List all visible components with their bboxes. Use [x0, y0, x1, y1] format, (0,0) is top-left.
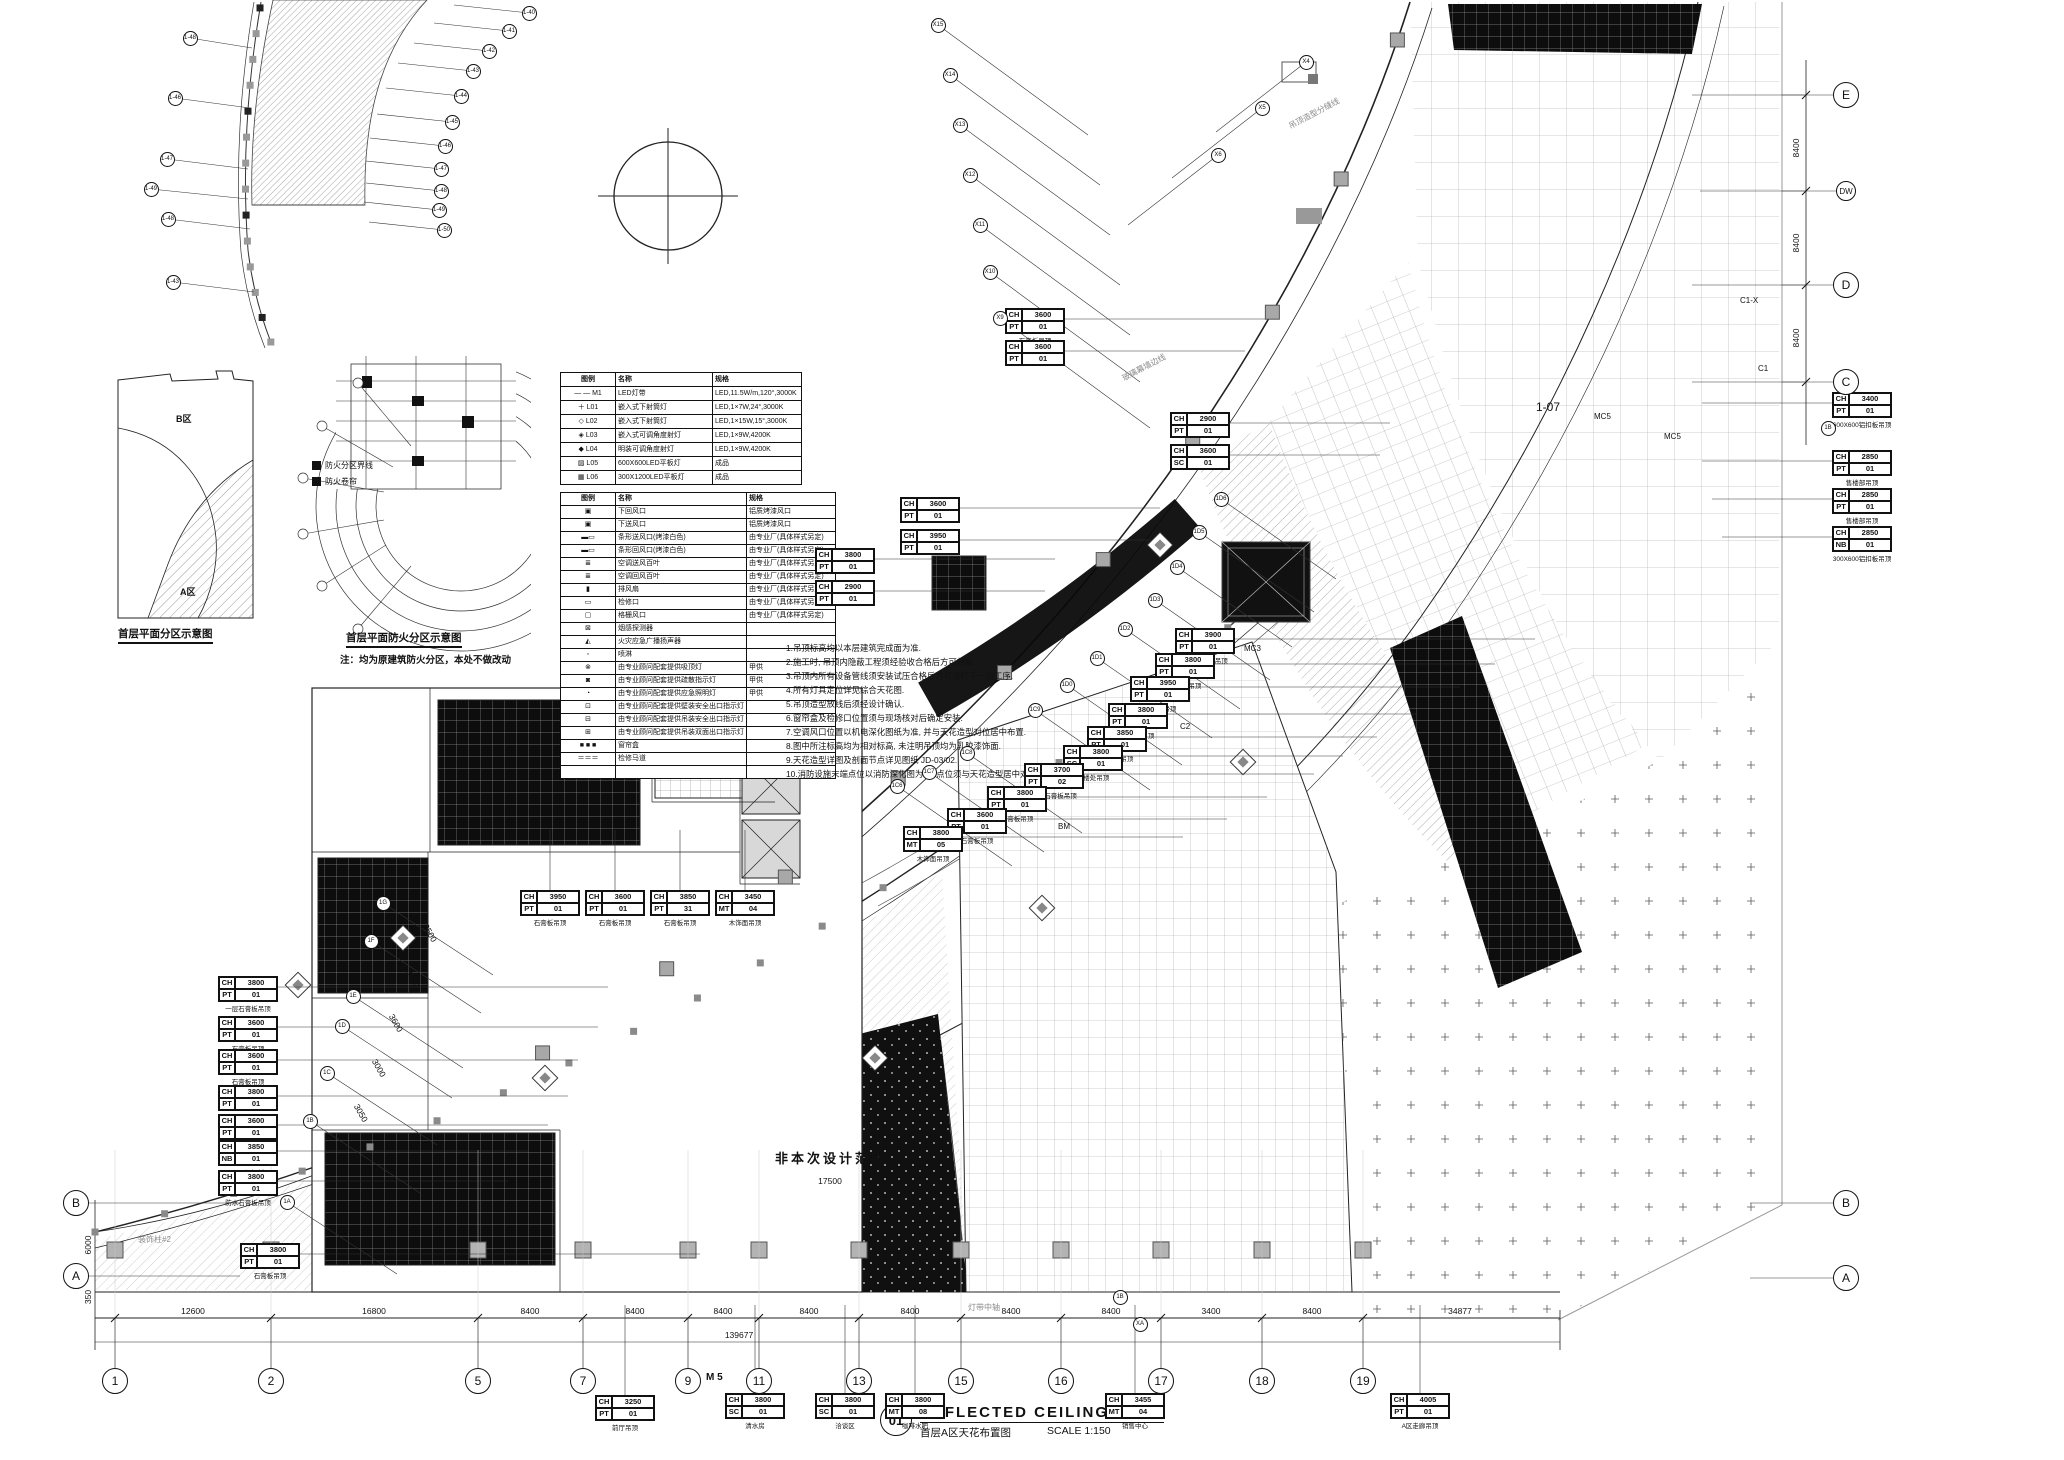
grid-bubble-label: 1D6 [1215, 496, 1226, 502]
ceiling-tag-cell: PT [219, 1062, 235, 1074]
legend-cell: 由专业厂(具体样式另定) [747, 532, 836, 545]
plan-text: M 5 [706, 1372, 723, 1383]
ceiling-tag-cell: MT [904, 839, 920, 851]
ceiling-tag-cell: MT [716, 903, 732, 915]
ceiling-tag-cell: CH [1106, 1394, 1122, 1406]
ceiling-tag-box: CH3600PT01 [585, 890, 645, 916]
grid-bubble-label: 1-48 [184, 35, 196, 41]
grid-bubble-label: 1-48 [162, 216, 174, 222]
dimension-label: 8400 [1303, 1306, 1322, 1316]
grid-bubble-label: 1C [323, 1070, 331, 1076]
ceiling-tag-box: CH3600PT01 [218, 1016, 278, 1042]
grid-bubble: 1 [102, 1368, 128, 1394]
ceiling-tag-cell: 02 [1041, 776, 1083, 788]
legend-cell: LED,11.5W/m,120°,3000K [713, 387, 802, 401]
grid-bubble: 1D2 [1118, 622, 1133, 637]
grid-bubble-label: 1C7 [923, 769, 934, 775]
ceiling-tag-cell: CH [1171, 445, 1187, 457]
ceiling-tag-cell: 3600 [1187, 445, 1229, 457]
dimension-label: 8400 [901, 1306, 920, 1316]
ceiling-tag-caption: 300X600铝扣板吊顶 [1802, 553, 1922, 563]
ceiling-tag-cell: 01 [612, 1408, 654, 1420]
ceiling-tag: CH3600PT01石膏板吊顶 [218, 1049, 278, 1086]
ceiling-tag-cell: 3800 [1004, 787, 1046, 799]
grid-bubble-label: 1-46 [439, 143, 451, 149]
ceiling-tag: CH3600SC01 [1170, 444, 1230, 471]
plan-text: 非本次设计范围 [775, 1148, 887, 1167]
grid-bubble: 1D5 [1192, 525, 1207, 540]
plan-text: MC5 [1594, 412, 1611, 421]
ceiling-tag-box: CH3800PT01 [218, 1170, 278, 1196]
legend-cell: 由专业顾问配套提供壁装安全出口指示灯 [616, 701, 747, 714]
legend-cell: 检修口 [616, 597, 747, 610]
ceiling-tag: CH3600PT01石膏板吊顶 [218, 1016, 278, 1053]
grid-bubble-label: 1D3 [1149, 597, 1160, 603]
ceiling-tag-box: CH3600PT01 [1005, 340, 1065, 366]
grid-bubble: 1-46 [168, 91, 183, 106]
ceiling-tag-cell: 01 [235, 1098, 277, 1110]
ceiling-tag-cell: CH [886, 1394, 902, 1406]
legend-cell: ◦ [561, 649, 616, 662]
legend-row: ⊠烟感探测器 [561, 623, 836, 636]
ceiling-tag-cell: CH [1006, 341, 1022, 353]
legend-cell: 铝质烤漆风口 [747, 506, 836, 519]
grid-bubble: A [1833, 1265, 1859, 1291]
plan-text: C1-X [1740, 296, 1758, 305]
grid-bubble-label: 7 [580, 1374, 587, 1388]
ceiling-tag-box: CH3455MT04 [1105, 1393, 1165, 1419]
ceiling-tag: CH2900PT01 [815, 580, 875, 607]
plan-text: BM [1058, 822, 1070, 831]
legend-cell: ◭ [561, 636, 616, 649]
legend-cell: 明装可调角度射灯 [616, 443, 713, 457]
legend-cell: 火灾应急广播扬声器 [616, 636, 747, 649]
grid-bubble: 1G [376, 896, 391, 911]
ceiling-tag-cell: CH [219, 1017, 235, 1029]
legend-cell: 条形送风口(烤漆白色) [616, 532, 747, 545]
ceiling-tag: CH3800MT05木饰面吊顶 [903, 826, 963, 863]
ceiling-tag-box: CH3450MT04 [715, 890, 775, 916]
legend-cell: ▦ L06 [561, 471, 616, 485]
ceiling-tag-cell: 3900 [1192, 629, 1234, 641]
ceiling-tag-cell: PT [521, 903, 537, 915]
ceiling-tag-cell: 3455 [1122, 1394, 1164, 1406]
ceiling-tag: CH2900PT01 [1170, 412, 1230, 439]
fire-legend-swatch [312, 461, 321, 470]
grid-bubble: 11 [746, 1368, 772, 1394]
legend-cell: LED,1×9W,4200K [713, 429, 802, 443]
legend-row: ◆ L04明装可调角度射灯LED,1×9W,4200K [561, 443, 802, 457]
plan-text: MC3 [1244, 644, 1261, 653]
dimension-label: 8400 [1102, 1306, 1121, 1316]
ceiling-tag-cell: 01 [1022, 353, 1064, 365]
legend-cell: ◇ L02 [561, 415, 616, 429]
ceiling-tag-cell: 3450 [732, 891, 774, 903]
legend-cell: 检修马道 [616, 753, 747, 766]
legend-cell: ▣ [561, 519, 616, 532]
ceiling-tag-cell: PT [241, 1256, 257, 1268]
ceiling-tag-box: CH3400PT01 [1832, 392, 1892, 418]
ceiling-tag-box: CH4005PT01 [1390, 1393, 1450, 1419]
grid-bubble-label: C [1842, 375, 1851, 389]
ceiling-tag-cell: 2850 [1849, 451, 1891, 463]
note-line: 10.消防设施末端点位以消防深化图为准, 点位须与天花造型居中对齐布置. [786, 767, 1056, 781]
grid-bubble: 1D4 [1170, 560, 1185, 575]
plan-text: 1-07 [1536, 400, 1560, 414]
ceiling-tag-box: CH3250PT01 [595, 1395, 655, 1421]
ceiling-tag-cell: PT [219, 1127, 235, 1139]
ceiling-tag-cell: CH [219, 1141, 235, 1153]
legend-row: — — M1LED灯带LED,11.5W/m,120°,3000K [561, 387, 802, 401]
ceiling-tag-cell: 01 [1407, 1406, 1449, 1418]
ceiling-tag-box: CH3800PT01 [218, 1085, 278, 1111]
ceiling-tag: CH3450MT04木饰面吊顶 [715, 890, 775, 927]
legend-cell: ＋ L01 [561, 401, 616, 415]
ceiling-tag-cell: CH [241, 1244, 257, 1256]
grid-bubble: 1F [364, 934, 379, 949]
ceiling-tag-cell: 3600 [235, 1017, 277, 1029]
grid-bubble-label: 1-40 [523, 10, 535, 16]
ceiling-tag-cell: CH [1064, 746, 1080, 758]
ceiling-tag-cell: CH [1088, 727, 1104, 739]
ceiling-tag: CH3800PT01防水石膏板吊顶 [218, 1170, 278, 1207]
ceiling-tag-cell: 05 [920, 839, 962, 851]
grid-bubble-label: 1D4 [1171, 564, 1182, 570]
grid-bubble: 19 [1350, 1368, 1376, 1394]
grid-bubble: 1-46 [438, 139, 453, 154]
ceiling-tag-box: CH3950PT01 [520, 890, 580, 916]
ceiling-tag-cell: 01 [1080, 758, 1122, 770]
grid-bubble: 1-43 [166, 275, 181, 290]
grid-bubble-label: 1A [283, 1199, 290, 1205]
ceiling-tag-cell: 01 [1004, 799, 1046, 811]
legend-cell: 由专业顾问配套提供吸顶灯 [616, 662, 747, 675]
grid-bubble-label: X10 [985, 269, 996, 275]
grid-bubble: A [63, 1263, 89, 1289]
dimension-label: 139677 [725, 1330, 753, 1340]
ceiling-tag-cell: 3950 [917, 530, 959, 542]
ceiling-tag-cell: 01 [1187, 425, 1229, 437]
note-line: 6.窗帘盒及检修口位置须与现场核对后确定安装. [786, 711, 1056, 725]
ceiling-tag-cell: 01 [742, 1406, 784, 1418]
legend-cell: ⊗ [561, 662, 616, 675]
note-line: 1.吊顶标高均以本层建筑完成面为准. [786, 641, 1056, 655]
grid-bubble-label: X6 [1214, 152, 1221, 158]
ceiling-tag-cell: 3850 [667, 891, 709, 903]
ceiling-tag-cell: 01 [832, 1406, 874, 1418]
grid-bubble: 1D0 [1060, 678, 1075, 693]
legend-cell: ■ ■ ■ [561, 740, 616, 753]
ceiling-tag-cell: CH [219, 1115, 235, 1127]
grid-bubble-label: X5 [1258, 105, 1265, 111]
grid-bubble: 16 [1048, 1368, 1074, 1394]
grid-bubble-label: 1-48 [435, 188, 447, 194]
grid-bubble: 1-48 [183, 31, 198, 46]
grid-bubble-label: A [1842, 1271, 1850, 1285]
grid-bubble-label: 1G [379, 900, 387, 906]
grid-bubble: 1-49 [144, 182, 159, 197]
ceiling-tag-cell: PT [596, 1408, 612, 1420]
dimension-label: 8400 [714, 1306, 733, 1316]
grid-bubble-label: X14 [945, 72, 956, 78]
ceiling-tag-box: CH3950PT01 [900, 529, 960, 555]
grid-bubble-label: X12 [965, 172, 976, 178]
ceiling-tag-cell: 3800 [235, 1171, 277, 1183]
legend-cell: ▮ [561, 584, 616, 597]
grid-bubble: 1C8 [960, 746, 975, 761]
ceiling-tag-cell: CH [1833, 527, 1849, 539]
plan-text: 装饰柱#2 [138, 1234, 171, 1245]
ceiling-tag-cell: PT [1391, 1406, 1407, 1418]
grid-bubble-label: X9 [996, 315, 1003, 321]
grid-bubble-label: 1D5 [1193, 529, 1204, 535]
grid-bubble: 1C9 [1028, 703, 1043, 718]
grid-bubble-label: 1B [306, 1118, 313, 1124]
dimension-label: 8400 [521, 1306, 540, 1316]
legend-row: ▢格栅风口由专业厂(具体样式另定) [561, 610, 836, 623]
legend-cell: ≣ [561, 558, 616, 571]
ceiling-tag-cell: 3800 [832, 549, 874, 561]
grid-bubble-label: 1-43 [167, 279, 179, 285]
grid-bubble: 1-49 [432, 203, 447, 218]
grid-bubble-label: 1-44 [455, 93, 467, 99]
legend-row: ▦ L06300X1200LED平板灯成品 [561, 471, 802, 485]
ceiling-tag-cell: 01 [257, 1256, 299, 1268]
grid-bubble: X14 [943, 68, 958, 83]
ceiling-tag-cell: PT [1131, 689, 1147, 701]
grid-bubble: 1C [320, 1066, 335, 1081]
ceiling-tag-cell: 01 [832, 561, 874, 573]
ceiling-tag-cell: 3600 [235, 1050, 277, 1062]
grid-bubble-label: 11 [753, 1374, 765, 1388]
grid-bubble-label: 1C6 [891, 783, 902, 789]
ceiling-tag-cell: PT [219, 1098, 235, 1110]
dimension-label: 8400 [800, 1306, 819, 1316]
ceiling-tag-cell: CH [1109, 704, 1125, 716]
grid-bubble-label: 19 [1356, 1374, 1369, 1388]
dimension-label: 17500 [818, 1176, 842, 1186]
grid-bubble-label: 1E [349, 993, 356, 999]
note-line: 7.空调风口位置以机电深化图纸为准, 并与天花造型对位居中布置. [786, 725, 1056, 739]
grid-bubble: X12 [963, 168, 978, 183]
ceiling-tag-box: CH2850PT01 [1832, 450, 1892, 476]
legend-cell [747, 623, 836, 636]
legend-row: ◇ L02嵌入式下射筒灯LED,1×15W,15°,3000K [561, 415, 802, 429]
legend-cell: 下回风口 [616, 506, 747, 519]
ceiling-tag-caption: 售楼部吊顶 [1802, 477, 1922, 487]
dimension-label: 8400 [1791, 139, 1801, 158]
grid-bubble-label: 15 [954, 1374, 967, 1388]
zone-b-label: B区 [176, 412, 192, 425]
legend-cell: ◆ L04 [561, 443, 616, 457]
legend-row: ▮排风扇由专业厂(具体样式另定) [561, 584, 836, 597]
ceiling-tag-cell: 3800 [1172, 654, 1214, 666]
ceiling-tag-cell: 04 [1122, 1406, 1164, 1418]
misc-boxes [1282, 62, 1322, 224]
ceiling-tag-cell: PT [1833, 501, 1849, 513]
legend-cell: ▣ [561, 506, 616, 519]
keyplan-fire-caption: 首层平面防火分区示意图 [346, 630, 462, 648]
ceiling-tag-cell: CH [1833, 489, 1849, 501]
ceiling-tag-box: CH3850PT31 [650, 890, 710, 916]
ceiling-tag-cell: CH [596, 1396, 612, 1408]
ceiling-tag: CH3800MT08咖啡水吧 [885, 1393, 945, 1430]
lighting-legend-table: 图例名称规格— — M1LED灯带LED,11.5W/m,120°,3000K＋… [560, 372, 802, 485]
ceiling-tag-cell: 01 [1187, 457, 1229, 469]
grid-bubble-label: 1-49 [145, 186, 157, 192]
grid-bubble: X13 [953, 118, 968, 133]
ceiling-tag-cell: PT [816, 593, 832, 605]
grid-bubble: 1-43 [466, 64, 481, 79]
note-line: 5.吊顶造型放线后须经设计确认. [786, 697, 1056, 711]
grid-bubble-label: 1D [338, 1023, 346, 1029]
legend-cell: ▢ [561, 610, 616, 623]
legend-cell: LED灯带 [616, 387, 713, 401]
ceiling-tag-cell: NB [219, 1153, 235, 1165]
ceiling-tag-cell: 3700 [1041, 764, 1083, 776]
legend-cell: 窗帘盒 [616, 740, 747, 753]
ceiling-tag-cell: MT [886, 1406, 902, 1418]
ceiling-tag-cell: CH [219, 1086, 235, 1098]
legend-cell: 嵌入式可调角度射灯 [616, 429, 713, 443]
legend-cell: 烟感探测器 [616, 623, 747, 636]
ceiling-tag-box: CH3850NB01 [218, 1140, 278, 1166]
ceiling-tag-cell: PT [586, 903, 602, 915]
ceiling-tag-cell: CH [586, 891, 602, 903]
ceiling-tag-caption: 销售中心 [1075, 1420, 1195, 1430]
grid-bubble: 1B [303, 1114, 318, 1129]
ceiling-tag-caption: A区走廊吊顶 [1360, 1420, 1480, 1430]
ceiling-tag-cell: SC [816, 1406, 832, 1418]
legend-row: ▣下送风口铝质烤漆风口 [561, 519, 836, 532]
legend-header: 名称 [616, 493, 747, 506]
ceiling-tag-cell: 01 [1849, 463, 1891, 475]
ceiling-tag-cell: CH [816, 1394, 832, 1406]
note-line: 4.所有灯具定位详见综合天花图. [786, 683, 1056, 697]
ceiling-tag-cell: PT [1833, 405, 1849, 417]
legend-cell: ◙ [561, 675, 616, 688]
grid-bubble-label: 5 [475, 1374, 482, 1388]
grid-bubble: X6 [1211, 148, 1226, 163]
grid-bubble: 1C7 [922, 765, 937, 780]
ceiling-tag-cell: 3800 [1080, 746, 1122, 758]
legend-row: ▬▭条形回风口(烤漆白色)由专业厂(具体样式另定) [561, 545, 836, 558]
ceiling-tag-box: CH3800PT01 [815, 548, 875, 574]
ceiling-tag-cell: 01 [602, 903, 644, 915]
grid-bubble-label: 1C8 [961, 750, 972, 756]
legend-cell: 空调送风百叶 [616, 558, 747, 571]
legend-cell: 排风扇 [616, 584, 747, 597]
ceiling-tag-cell: 01 [1192, 641, 1234, 653]
ceiling-tag-cell: 3800 [832, 1394, 874, 1406]
ceiling-tag-cell: SC [1171, 457, 1187, 469]
ceiling-tag-cell: 3800 [235, 1086, 277, 1098]
ceiling-tag-cell: 01 [1022, 321, 1064, 333]
grid-bubble: 1-45 [445, 115, 460, 130]
ceiling-tag-box: CH3900PT01 [1175, 628, 1235, 654]
ceiling-tag-cell: PT [1833, 463, 1849, 475]
grid-bubble: 5 [465, 1368, 491, 1394]
note-line: 2.施工时, 吊顶内隐蔽工程须经验收合格后方可封板. [786, 655, 1056, 669]
legend-cell: 嵌入式下射筒灯 [616, 401, 713, 415]
grid-bubble: 1B [1113, 1290, 1128, 1305]
ceiling-tag: CH3800PT01一层石膏板吊顶 [218, 976, 278, 1013]
ceiling-tag-cell: 01 [917, 510, 959, 522]
grid-bubble-label: E [1842, 88, 1850, 102]
legend-cell: ⊞ [561, 727, 616, 740]
grid-bubble-label: 1B [1116, 1294, 1123, 1300]
legend-cell: ⊡ [561, 701, 616, 714]
ceiling-tag: CH3600PT01 [900, 497, 960, 524]
ceiling-tag-box: CH2850PT01 [1832, 488, 1892, 514]
keyplan-zoning [118, 371, 253, 618]
ceiling-tag-cell: CH [219, 977, 235, 989]
grid-bubble: 7 [570, 1368, 596, 1394]
legend-cell: 由专业厂(具体样式另定) [747, 610, 836, 623]
setout-diamond-marker [285, 972, 310, 997]
ceiling-tag-cell: PT [651, 903, 667, 915]
ceiling-tag-cell: 3600 [1022, 341, 1064, 353]
ceiling-tag-cell: 2850 [1849, 527, 1891, 539]
grid-bubble-label: 18 [1255, 1374, 1268, 1388]
grid-bubble-label: 1F [367, 938, 374, 944]
keyplan-zoning-caption: 首层平面分区示意图 [118, 626, 213, 644]
ceiling-tag-cell: PT [219, 1029, 235, 1041]
grid-bubble-label: A [72, 1269, 80, 1283]
ceiling-tag-cell: CH [1006, 309, 1022, 321]
note-line: 9.天花造型详图及剖面节点详见图纸 JD-03/02. [786, 753, 1056, 767]
legend-cell: 600X600LED平板灯 [616, 457, 713, 471]
grid-bubble: 1D3 [1148, 593, 1163, 608]
grid-bubble-label: DW [1839, 187, 1852, 196]
ceiling-tag-cell: 01 [235, 1062, 277, 1074]
ceiling-tag-box: CH2900PT01 [1170, 412, 1230, 438]
grid-bubble: 1-41 [502, 24, 517, 39]
grid-bubble: X9 [993, 311, 1008, 326]
legend-header: 规格 [713, 373, 802, 387]
ceiling-tag-cell: 01 [1849, 501, 1891, 513]
legend-cell: ⊠ [561, 623, 616, 636]
ceiling-tag: CH3800PT01石膏板吊顶 [240, 1243, 300, 1280]
curved-detail [239, 0, 427, 348]
grid-bubble-label: 1D0 [1061, 682, 1072, 688]
ceiling-tag-cell: PT [1006, 321, 1022, 333]
dimension-label: 8400 [1002, 1306, 1021, 1316]
legend-cell: ▨ L05 [561, 457, 616, 471]
ceiling-tag-cell: CH [1176, 629, 1192, 641]
ceiling-tag-cell: PT [901, 510, 917, 522]
note-line: 3.吊顶内所有设备管线须安装试压合格后方可进行下一道工序. [786, 669, 1056, 683]
legend-cell: ◈ L03 [561, 429, 616, 443]
dimension-label: 34877 [1448, 1306, 1472, 1316]
grid-bubble: 9 [675, 1368, 701, 1394]
grid-bubble-label: B [1842, 1196, 1850, 1210]
grid-bubble: 1-44 [454, 89, 469, 104]
grid-bubble-label: 9 [685, 1374, 692, 1388]
dimension-label: 6000 [83, 1236, 93, 1255]
grid-bubble-label: 1-45 [446, 119, 458, 125]
legend-row: ▣下回风口铝质烤漆风口 [561, 506, 836, 519]
legend-cell: ◔ [561, 688, 616, 701]
grid-bubble: 1C6 [890, 779, 905, 794]
legend-cell: 成品 [713, 471, 802, 485]
legend-cell: 喷淋 [616, 649, 747, 662]
ceiling-tag-box: CH3600SC01 [1170, 444, 1230, 470]
grid-bubble: X4 [1299, 55, 1314, 70]
ceiling-tag-cell: 3600 [917, 498, 959, 510]
grid-bubble: 1-40 [522, 6, 537, 21]
ceiling-tag-box: CH3800MT05 [903, 826, 963, 852]
